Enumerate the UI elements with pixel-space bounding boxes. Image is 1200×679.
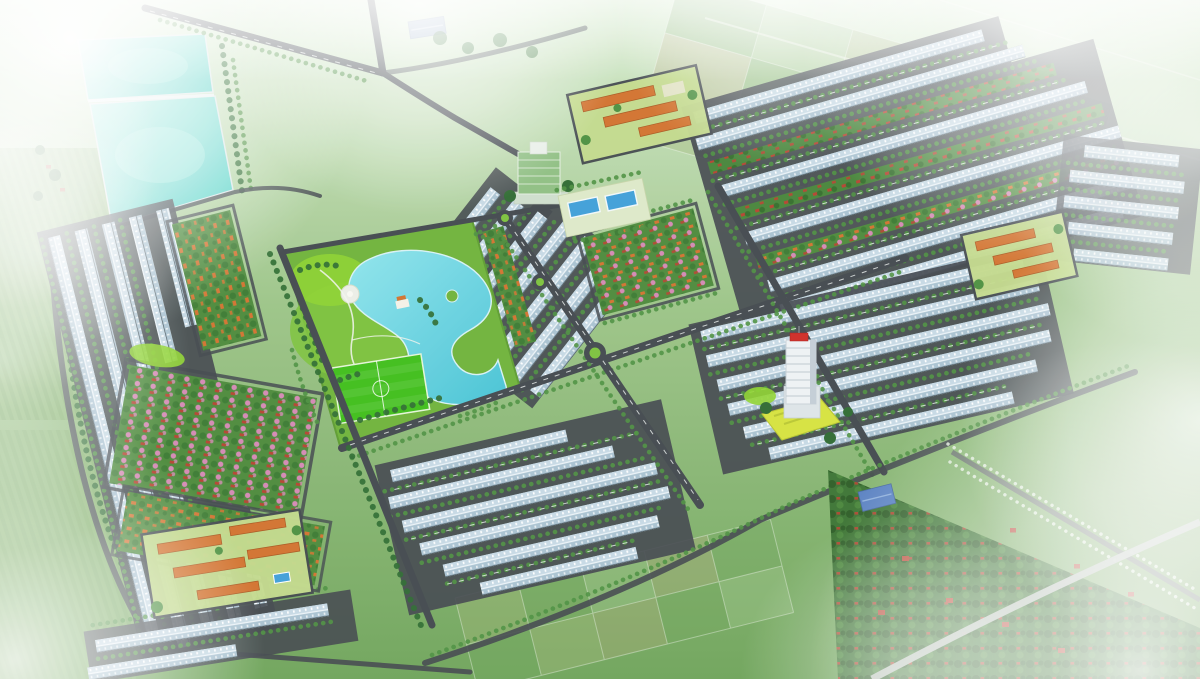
atmospheric-haze [0,0,1200,679]
haze-veil [0,0,1200,679]
masterplan-rendering [0,0,1200,679]
aerial-scene [0,0,1200,679]
